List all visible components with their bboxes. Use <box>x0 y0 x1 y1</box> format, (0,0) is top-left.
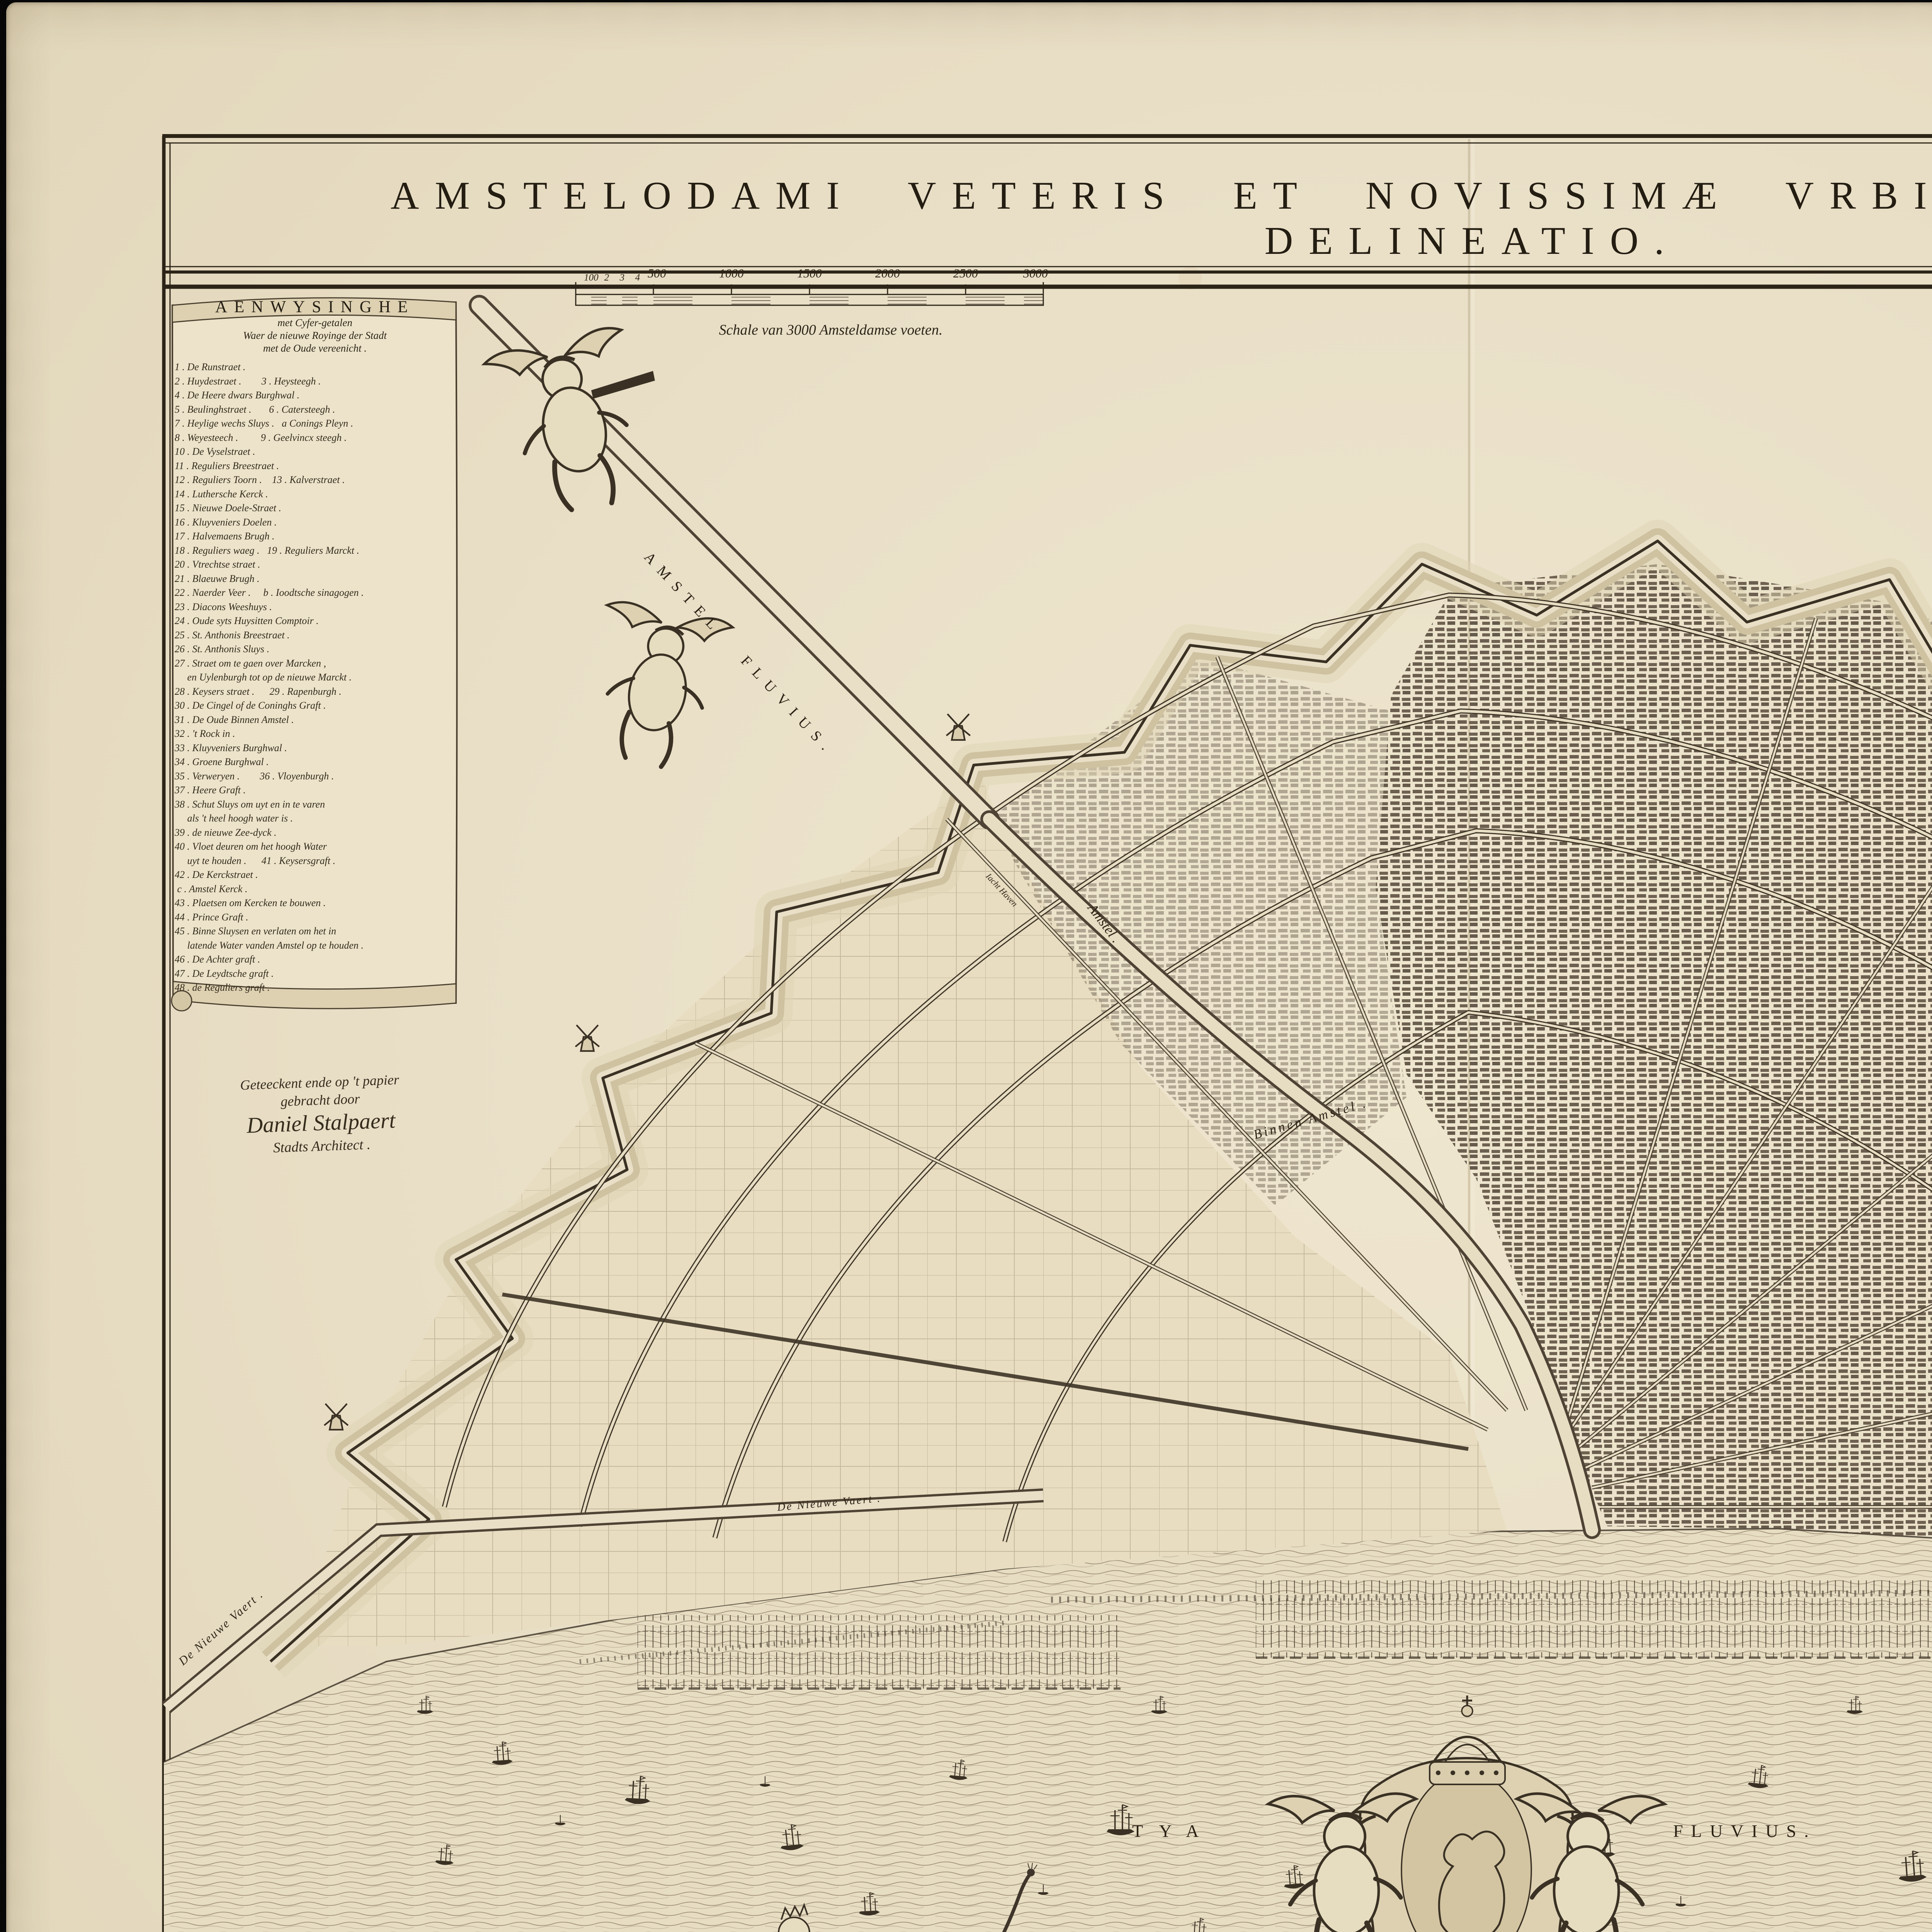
legend-entry: 33 . Kluyveniers Burghwal . <box>175 741 455 755</box>
legend-left-subtitle-line: met Cyfer-getalen <box>175 316 455 329</box>
legend-left-title: AENWYSINGHE <box>175 298 455 316</box>
windmill-icon <box>946 714 970 740</box>
legend-entry: 5 . Beulinghstraet . 6 . Catersteegh . <box>175 403 455 417</box>
legend-left-subtitle: met Cyfer-getalen Waer de nieuwe Royinge… <box>175 316 455 355</box>
scale-tick: 1500 <box>797 266 822 280</box>
windmill-icon <box>575 1025 599 1051</box>
legend-entry: 10 . De Vyselstraet . <box>175 445 455 459</box>
legend-entry: 44 . Prince Graft . <box>175 910 455 925</box>
legend-entry: 23 . Diacons Weeshuys . <box>175 600 455 614</box>
architect-note: Geteeckent ende op 't papier gebracht do… <box>161 1068 481 1162</box>
legend-entry: 40 . Vloet deuren om het hoogh Water <box>175 840 455 854</box>
legend-entry: 17 . Halvemaens Brugh . <box>175 529 455 544</box>
legend-entry: 25 . St. Anthonis Breestraet . <box>175 628 455 643</box>
scale-tick: 1000 <box>719 266 744 280</box>
map-sheet: 100 2 3 4 500 1000 1500 2000 2500 3000 <box>0 0 1932 1932</box>
legend-entry: en Uylenburgh tot op de nieuwe Marckt . <box>175 670 455 685</box>
windmill-icon <box>324 1404 348 1430</box>
scale-tick: 4 <box>635 272 640 283</box>
legend-left-panel: AENWYSINGHE met Cyfer-getalen Waer de ni… <box>175 298 455 995</box>
scale-tick: 2500 <box>953 266 978 280</box>
legend-entry: 38 . Schut Sluys om uyt en in te varen <box>175 798 455 812</box>
legend-entry: 2 . Huydestraet . 3 . Heysteegh . <box>175 374 455 389</box>
legend-entry: 31 . De Oude Binnen Amstel . <box>175 713 455 727</box>
scale-tick: 3000 <box>1023 266 1048 280</box>
legend-entry: 43 . Plaetsen om Kercken te bouwen . <box>175 896 455 910</box>
legend-entry: 37 . Heere Graft . <box>175 783 455 798</box>
legend-left-entries: 1 . De Runstraet .2 . Huydestraet . 3 . … <box>175 360 455 995</box>
legend-entry: 15 . Nieuwe Doele-Straet . <box>175 501 455 515</box>
trumpet-icon <box>591 371 655 399</box>
legend-left-subtitle-line: Waer de nieuwe Royinge der Stadt <box>175 329 455 342</box>
legend-entry: 20 . Vtrechtse straet . <box>175 558 455 572</box>
legend-entry: latende Water vanden Amstel op te houden… <box>175 939 455 953</box>
legend-entry: 12 . Reguliers Toorn . 13 . Kalverstraet… <box>175 473 455 487</box>
legend-entry: 35 . Verweryen . 36 . Vloyenburgh . <box>175 769 455 784</box>
scale-tick: 2 <box>604 272 609 283</box>
legend-entry: 22 . Naerder Veer . b . Ioodtsche sinago… <box>175 586 455 600</box>
legend-entry: c . Amstel Kerck . <box>175 882 455 896</box>
legend-entry: 42 . De Kerckstraet . <box>175 868 455 882</box>
legend-entry: 30 . De Cingel of de Coninghs Graft . <box>175 699 455 713</box>
legend-entry: 24 . Oude syts Huysitten Comptoir . <box>175 614 455 628</box>
legend-entry: 45 . Binne Sluysen en verlaten om het in <box>175 924 455 939</box>
legend-entry: 47 . De Leydtsche graft . <box>175 967 455 981</box>
scale-caption: Schale van 3000 Amsteldamse voeten. <box>626 321 1036 338</box>
map-title: AMSTELODAMI VETERIS ET NOVISSIMÆ VRBIS A… <box>166 173 1932 264</box>
legend-entry: 48 . de Reguliers graft . <box>175 981 455 995</box>
legend-entry: 27 . Straet om te gaen over Marcken , <box>175 656 455 671</box>
legend-entry: 7 . Heylige wechs Sluys . a Conings Pley… <box>175 417 455 431</box>
scale-tick: 3 <box>619 272 625 283</box>
label-ya-fluvius-left: TYA <box>1132 1821 1215 1841</box>
legend-entry: 34 . Groene Burghwal . <box>175 755 455 769</box>
legend-entry: 16 . Kluyveniers Doelen . <box>175 515 455 530</box>
legend-entry: 28 . Keysers straet . 29 . Rapenburgh . <box>175 685 455 699</box>
legend-entry: 21 . Blaeuwe Brugh . <box>175 572 455 586</box>
legend-entry: als 't heel hoogh water is . <box>175 811 455 826</box>
scale-tick: 500 <box>648 266 666 280</box>
scale-tick: 100 <box>584 272 599 283</box>
legend-entry: 1 . De Runstraet . <box>175 360 455 374</box>
putto-icon <box>482 325 656 523</box>
legend-entry: 14 . Luthersche Kerck . <box>175 487 455 502</box>
legend-entry: 8 . Weyesteech . 9 . Geelvincx steegh . <box>175 431 455 445</box>
legend-entry: 11 . Reguliers Breestraet . <box>175 459 455 473</box>
legend-entry: 4 . De Heere dwars Burghwal . <box>175 388 455 403</box>
scale-tick: 2000 <box>875 266 900 280</box>
legend-entry: 46 . De Achter graft . <box>175 952 455 967</box>
legend-entry: 18 . Reguliers waeg . 19 . Reguliers Mar… <box>175 544 455 558</box>
legend-entry: uyt te houden . 41 . Keysersgraft . <box>175 854 455 868</box>
legend-entry: 32 . 't Rock in . <box>175 727 455 741</box>
legend-left-subtitle-line: met de Oude vereenicht . <box>175 342 455 355</box>
label-ya-fluvius-right: FLUVIUS. <box>1673 1821 1816 1841</box>
legend-entry: 39 . de nieuwe Zee-dyck . <box>175 826 455 840</box>
legend-entry: 26 . St. Anthonis Sluys . <box>175 642 455 656</box>
